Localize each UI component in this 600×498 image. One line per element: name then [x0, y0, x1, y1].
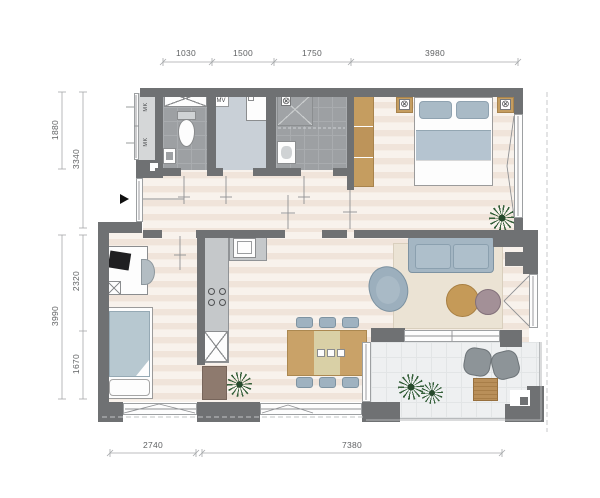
floor-plan: ⊗ ⊗ MV ⊗: [0, 0, 600, 498]
balcony-doors: [404, 330, 500, 342]
window-bedroom-east: [514, 114, 523, 218]
dining-chair: [319, 317, 336, 328]
wall: [155, 168, 181, 176]
meter-cupboard-label: MK: [143, 99, 149, 115]
blanket-fold: [136, 360, 149, 376]
dining-chair: [342, 317, 359, 328]
wall: [207, 88, 216, 168]
wall-west: [98, 222, 109, 413]
bedside-lamp-icon: ⊗: [399, 99, 410, 110]
wall: [266, 88, 276, 168]
window-living-east: [529, 274, 538, 328]
entrance-arrow-icon: [120, 194, 129, 204]
basin-bowl: [281, 146, 292, 159]
wall-south-hall: [322, 230, 347, 238]
wall-south-hall: [354, 230, 497, 238]
mk-text: MK: [143, 137, 149, 146]
pillow: [419, 101, 452, 119]
pillow: [109, 379, 150, 396]
basin-bowl: [166, 152, 173, 160]
wall-south-pier: [98, 402, 123, 422]
bed-blanket: [416, 130, 491, 161]
wall: [500, 330, 522, 347]
dining-chair: [342, 377, 359, 388]
plant-icon: [489, 205, 515, 231]
kitchen-end-cabinet: [202, 366, 227, 400]
fridge-crossed-box: [204, 331, 228, 362]
plant-icon: [227, 372, 252, 397]
wardrobe: [353, 95, 374, 187]
dimension-bottom-7380: 7380: [322, 440, 382, 450]
armchair-seat: [376, 276, 400, 304]
wall-north: [140, 88, 523, 97]
dining-chair: [296, 377, 313, 388]
dimension-top-4: 3980: [405, 48, 465, 58]
table-decor: [337, 349, 345, 357]
sofa-cushion: [453, 244, 489, 269]
wall-south-pier: [362, 402, 400, 422]
wall-south-pier: [197, 402, 260, 422]
dimension-left-3990: 3990: [50, 286, 60, 346]
wall: [347, 88, 354, 190]
window-south-2: [260, 403, 362, 415]
wall: [155, 88, 163, 168]
window-south-1: [123, 403, 197, 415]
balcony-corner-post: [520, 397, 528, 405]
desk-crossed-box: [107, 281, 121, 295]
wall-east: [514, 88, 523, 114]
wall-entry-corner: [98, 222, 142, 233]
dimension-top-1: 1030: [156, 48, 216, 58]
dining-chair: [319, 377, 336, 388]
wall: [253, 168, 301, 176]
cooktop-burner: [208, 299, 215, 306]
plant-icon: [421, 382, 443, 404]
sofa-cushion: [415, 244, 451, 269]
dimension-left-2320: 2320: [71, 251, 81, 311]
meter-cupboard-doors: [134, 93, 139, 160]
balcony-table: [473, 378, 498, 401]
meter-cupboard-label: MK: [143, 134, 149, 150]
dimension-top-3: 1750: [282, 48, 342, 58]
plant-icon: [398, 374, 424, 400]
table-decor: [327, 349, 335, 357]
table-decor: [317, 349, 325, 357]
dimension-left-1880: 1880: [50, 100, 60, 160]
wall: [371, 328, 405, 342]
coffee-table-small: [475, 289, 501, 315]
kitchen-sink-basin: [237, 241, 252, 254]
dimension-top-2: 1500: [213, 48, 273, 58]
shower-drain-icon: ⊗: [281, 96, 291, 106]
window-dining-east: [362, 342, 371, 402]
bedside-lamp-icon: ⊗: [500, 99, 511, 110]
entrance-door: [136, 178, 143, 222]
cooktop-burner: [208, 288, 215, 295]
cooktop-burner: [219, 288, 226, 295]
wall: [143, 230, 162, 238]
wall: [207, 168, 223, 176]
mk-text: MK: [143, 102, 149, 111]
dimension-bottom-2740: 2740: [123, 440, 183, 450]
laptop: [108, 250, 131, 270]
wall: [333, 168, 347, 176]
wall-step: [505, 252, 533, 266]
cooktop-burner: [219, 299, 226, 306]
dining-chair: [296, 317, 313, 328]
pillow: [456, 101, 489, 119]
dimension-left-1670: 1670: [71, 334, 81, 394]
mv-text: MV: [217, 98, 226, 104]
wall-study-east: [197, 232, 205, 365]
wall-south-hall: [196, 230, 285, 238]
dimension-left-3340: 3340: [71, 129, 81, 189]
